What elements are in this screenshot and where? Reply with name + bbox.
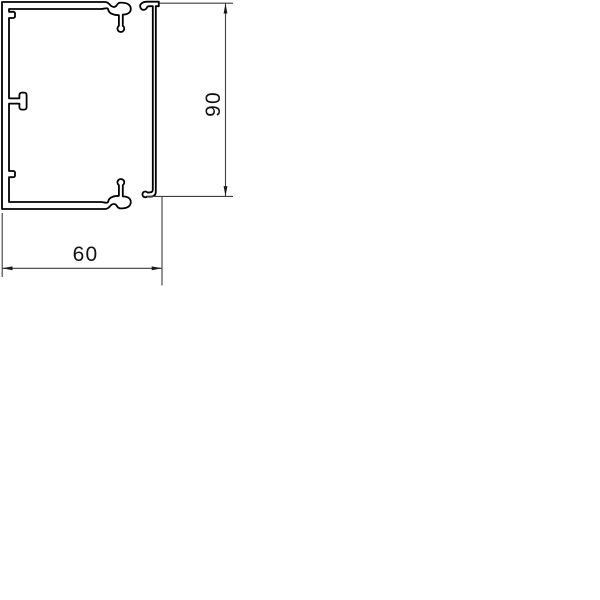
- trunking-cover-profile: [140, 2, 159, 198]
- arrowhead-right-icon: [152, 266, 162, 270]
- cover-profile-outline: [140, 2, 159, 198]
- arrowhead-up-icon: [224, 3, 228, 13]
- arrowhead-down-icon: [224, 186, 228, 196]
- technical-drawing: 90 60: [0, 0, 600, 600]
- body-profile-outline: [2, 2, 131, 209]
- height-dimension-label: 90: [202, 91, 225, 117]
- width-dimension-label: 60: [73, 243, 99, 266]
- arrowhead-left-icon: [2, 266, 12, 270]
- drawing-canvas: 90 60: [0, 0, 600, 600]
- trunking-body-profile: [2, 2, 131, 209]
- height-dimension: 90: [147, 3, 233, 196]
